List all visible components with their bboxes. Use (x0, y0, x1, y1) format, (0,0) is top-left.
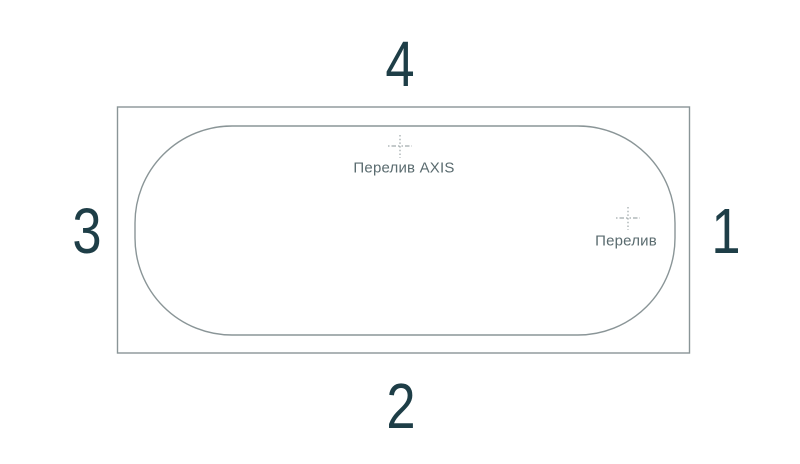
tub-outer-rim (118, 107, 690, 353)
center-mark-icon-overflow-axis (388, 135, 412, 158)
bathtub-top-view-diagram: 4 2 3 1 Перелив AXIS Перелив (0, 0, 800, 464)
side-label-right: 1 (711, 199, 740, 263)
side-label-top: 4 (385, 32, 414, 96)
overflow-label: Перелив (595, 234, 657, 249)
side-label-left: 3 (72, 199, 101, 263)
center-mark-icon-overflow (616, 207, 640, 230)
overflow-axis-label: Перелив AXIS (353, 161, 454, 176)
side-label-bottom: 2 (386, 374, 415, 438)
tub-inner-bowl (135, 126, 675, 335)
